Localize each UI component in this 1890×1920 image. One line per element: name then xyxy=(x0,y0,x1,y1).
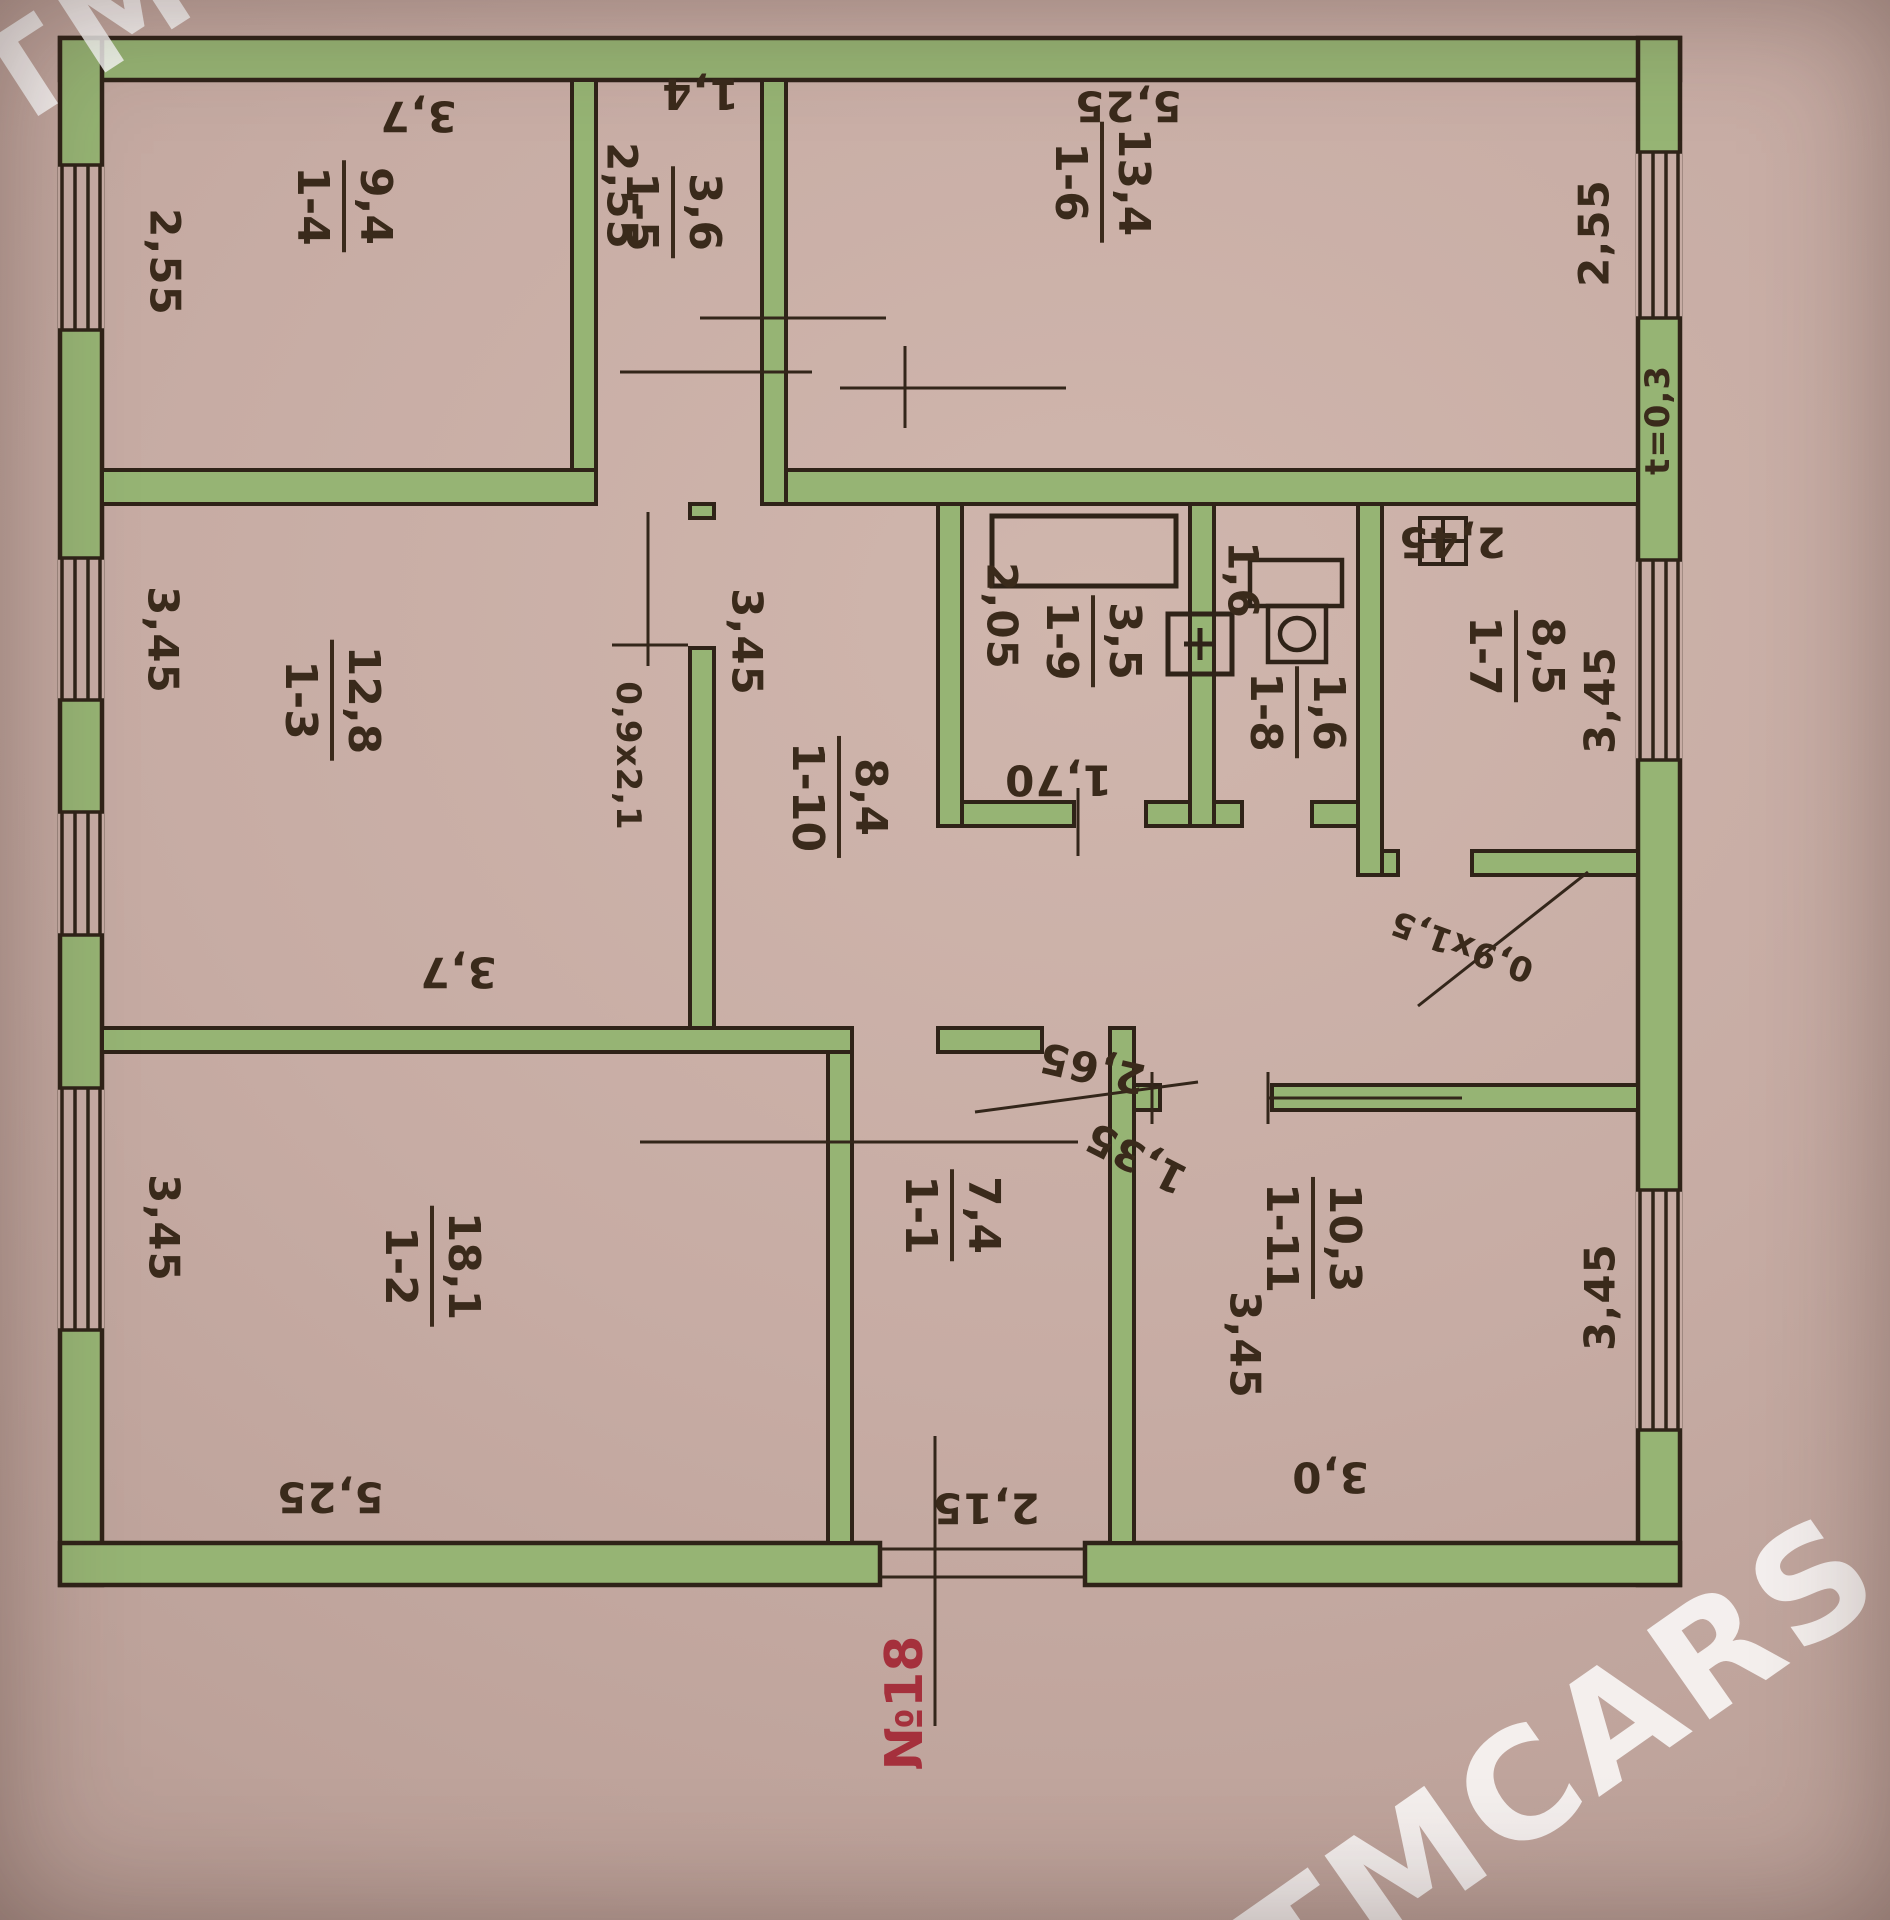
room-number: 1-7 xyxy=(1459,610,1518,702)
dimension-text: 3,0 xyxy=(1291,1453,1368,1502)
room-area: 7,4 xyxy=(954,1169,1009,1261)
dimension-text: 3,45 xyxy=(139,586,188,694)
dimension-text: 5,25 xyxy=(1074,82,1182,131)
unit-number-text: №18 xyxy=(875,1636,935,1771)
dimension-text: 1,70 xyxy=(1004,756,1112,805)
room-label-1-3: 12,8 1-3 xyxy=(275,640,389,761)
dimension-text: 2,55 xyxy=(141,208,190,316)
room-area: 8,5 xyxy=(1518,610,1573,702)
door-size-text: 0,9x2,1 xyxy=(608,681,648,830)
window-icon xyxy=(58,558,104,700)
dimension-text: 3,45 xyxy=(723,588,772,696)
dimension-text: 3,45 xyxy=(140,1174,189,1282)
dimension-text: 2,55 xyxy=(1570,179,1619,287)
window-icon xyxy=(1636,560,1682,760)
room-area: 1,6 xyxy=(1299,666,1354,758)
room-number: 1-3 xyxy=(275,640,334,761)
room-label-1-10: 8,4 1-10 xyxy=(782,736,896,858)
room-area: 3,5 xyxy=(1095,595,1150,687)
room-number: 1-9 xyxy=(1036,595,1095,687)
dimension-text: 2,45 xyxy=(1398,518,1506,567)
window-icon xyxy=(1636,152,1682,318)
room-number: 1-8 xyxy=(1240,666,1299,758)
window-icon xyxy=(58,812,104,935)
room-label-1-2: 18,1 1-2 xyxy=(375,1206,489,1327)
room-area: 18,1 xyxy=(434,1206,489,1327)
dimension-text: 3,7 xyxy=(419,948,496,997)
room-label-1-9: 3,5 1-9 xyxy=(1036,595,1150,687)
dimension-text: 3,7 xyxy=(379,92,456,141)
wall-thickness-text: t=0,3 xyxy=(1638,365,1678,475)
room-area: 13,4 xyxy=(1104,122,1159,243)
room-number: 1-10 xyxy=(782,736,841,858)
window-icon xyxy=(1636,1190,1682,1430)
room-label-1-1: 7,4 1-1 xyxy=(895,1169,1009,1261)
room-label-1-4: 9,4 1-4 xyxy=(287,160,401,252)
room-label-1-6: 13,4 1-6 xyxy=(1045,122,1159,243)
room-number: 1-11 xyxy=(1256,1177,1315,1299)
room-number: 1-2 xyxy=(375,1206,434,1327)
dimension-text: 2,15 xyxy=(932,1484,1040,1533)
room-area: 8,4 xyxy=(841,736,896,858)
room-number: 1-4 xyxy=(287,160,346,252)
dimension-text: 5,25 xyxy=(276,1473,384,1522)
room-area: 10,3 xyxy=(1315,1177,1370,1299)
room-label-1-11: 10,3 1-11 xyxy=(1256,1177,1370,1299)
dimension-text: 3,45 xyxy=(1221,1291,1270,1399)
room-area: 12,8 xyxy=(334,640,389,761)
window-icon xyxy=(58,165,104,330)
window-icon xyxy=(58,1088,104,1330)
dimension-text: 1,4 xyxy=(661,70,738,119)
dimension-text: 2,55 xyxy=(598,142,647,250)
room-area: 3,6 xyxy=(675,166,730,258)
room-number: 1-1 xyxy=(895,1169,954,1261)
dimension-text: 3,45 xyxy=(1576,646,1625,754)
room-number: 1-6 xyxy=(1045,122,1104,243)
floor-plan-photo: 7,4 1-1 18,1 1-2 12,8 1-3 9,4 1-4 3,6 1-… xyxy=(0,0,1890,1920)
dimension-text: 1,6 xyxy=(1219,541,1268,618)
dimension-text: 2,05 xyxy=(978,562,1027,670)
room-area: 9,4 xyxy=(346,160,401,252)
dimension-text: 3,45 xyxy=(1576,1243,1625,1351)
room-label-1-7: 8,5 1-7 xyxy=(1459,610,1573,702)
room-label-1-8: 1,6 1-8 xyxy=(1240,666,1354,758)
